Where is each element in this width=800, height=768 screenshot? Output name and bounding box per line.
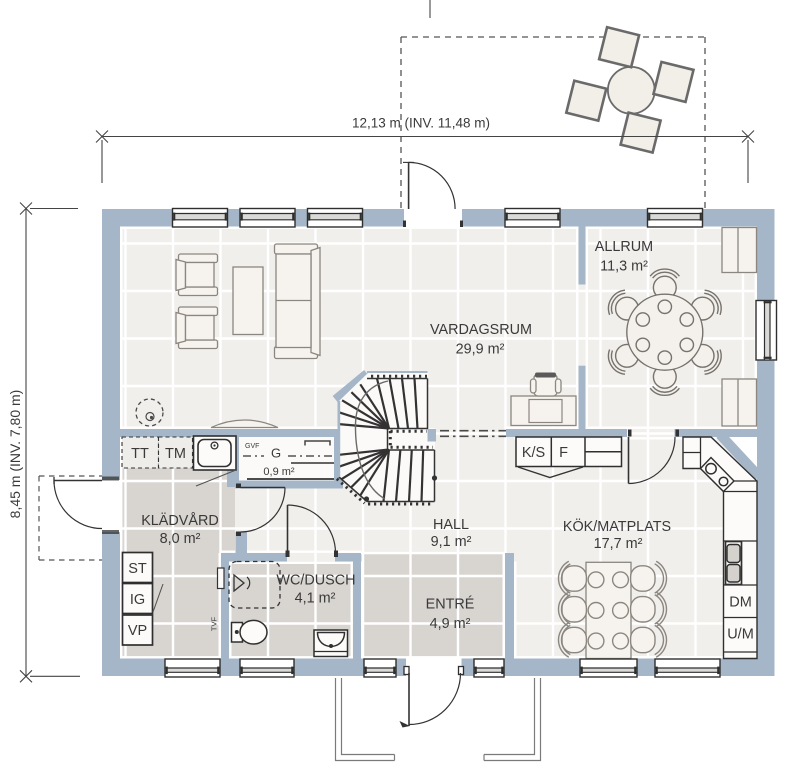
svg-text:TVF: TVF bbox=[210, 617, 219, 632]
svg-text:9,1 m²: 9,1 m² bbox=[431, 534, 472, 550]
svg-text:HALL: HALL bbox=[433, 517, 469, 533]
svg-text:TM: TM bbox=[165, 446, 186, 462]
svg-text:17,7 m²: 17,7 m² bbox=[594, 536, 643, 552]
svg-text:G: G bbox=[271, 446, 281, 461]
svg-text:K/S: K/S bbox=[522, 445, 545, 461]
svg-text:KLÄDVÅRD: KLÄDVÅRD bbox=[141, 512, 219, 529]
svg-text:11,3 m²: 11,3 m² bbox=[600, 259, 648, 275]
svg-text:ENTRÉ: ENTRÉ bbox=[426, 596, 475, 613]
svg-text:DM: DM bbox=[729, 595, 752, 611]
svg-text:29,9 m²: 29,9 m² bbox=[456, 342, 505, 358]
svg-text:12,13 m (INV. 11,48 m): 12,13 m (INV. 11,48 m) bbox=[352, 116, 490, 131]
svg-text:0,9 m²: 0,9 m² bbox=[263, 466, 295, 478]
svg-text:KÖK/MATPLATS: KÖK/MATPLATS bbox=[563, 517, 671, 535]
svg-text:U/M: U/M bbox=[727, 627, 754, 643]
svg-text:4,1 m²: 4,1 m² bbox=[295, 591, 336, 607]
svg-text:VARDAGSRUM: VARDAGSRUM bbox=[430, 322, 532, 338]
svg-text:WC/DUSCH: WC/DUSCH bbox=[276, 573, 355, 589]
svg-text:F: F bbox=[559, 445, 568, 461]
svg-text:IG: IG bbox=[130, 592, 145, 608]
svg-text:8,0 m²: 8,0 m² bbox=[160, 531, 201, 547]
svg-text:ALLRUM: ALLRUM bbox=[595, 239, 653, 255]
svg-text:GVF: GVF bbox=[245, 443, 259, 450]
svg-text:TT: TT bbox=[131, 446, 149, 462]
svg-text:VP: VP bbox=[128, 623, 147, 639]
svg-text:4,9 m²: 4,9 m² bbox=[430, 616, 471, 632]
svg-text:ST: ST bbox=[128, 561, 147, 577]
svg-text:8,45 m (INV. 7,80 m): 8,45 m (INV. 7,80 m) bbox=[7, 390, 23, 519]
